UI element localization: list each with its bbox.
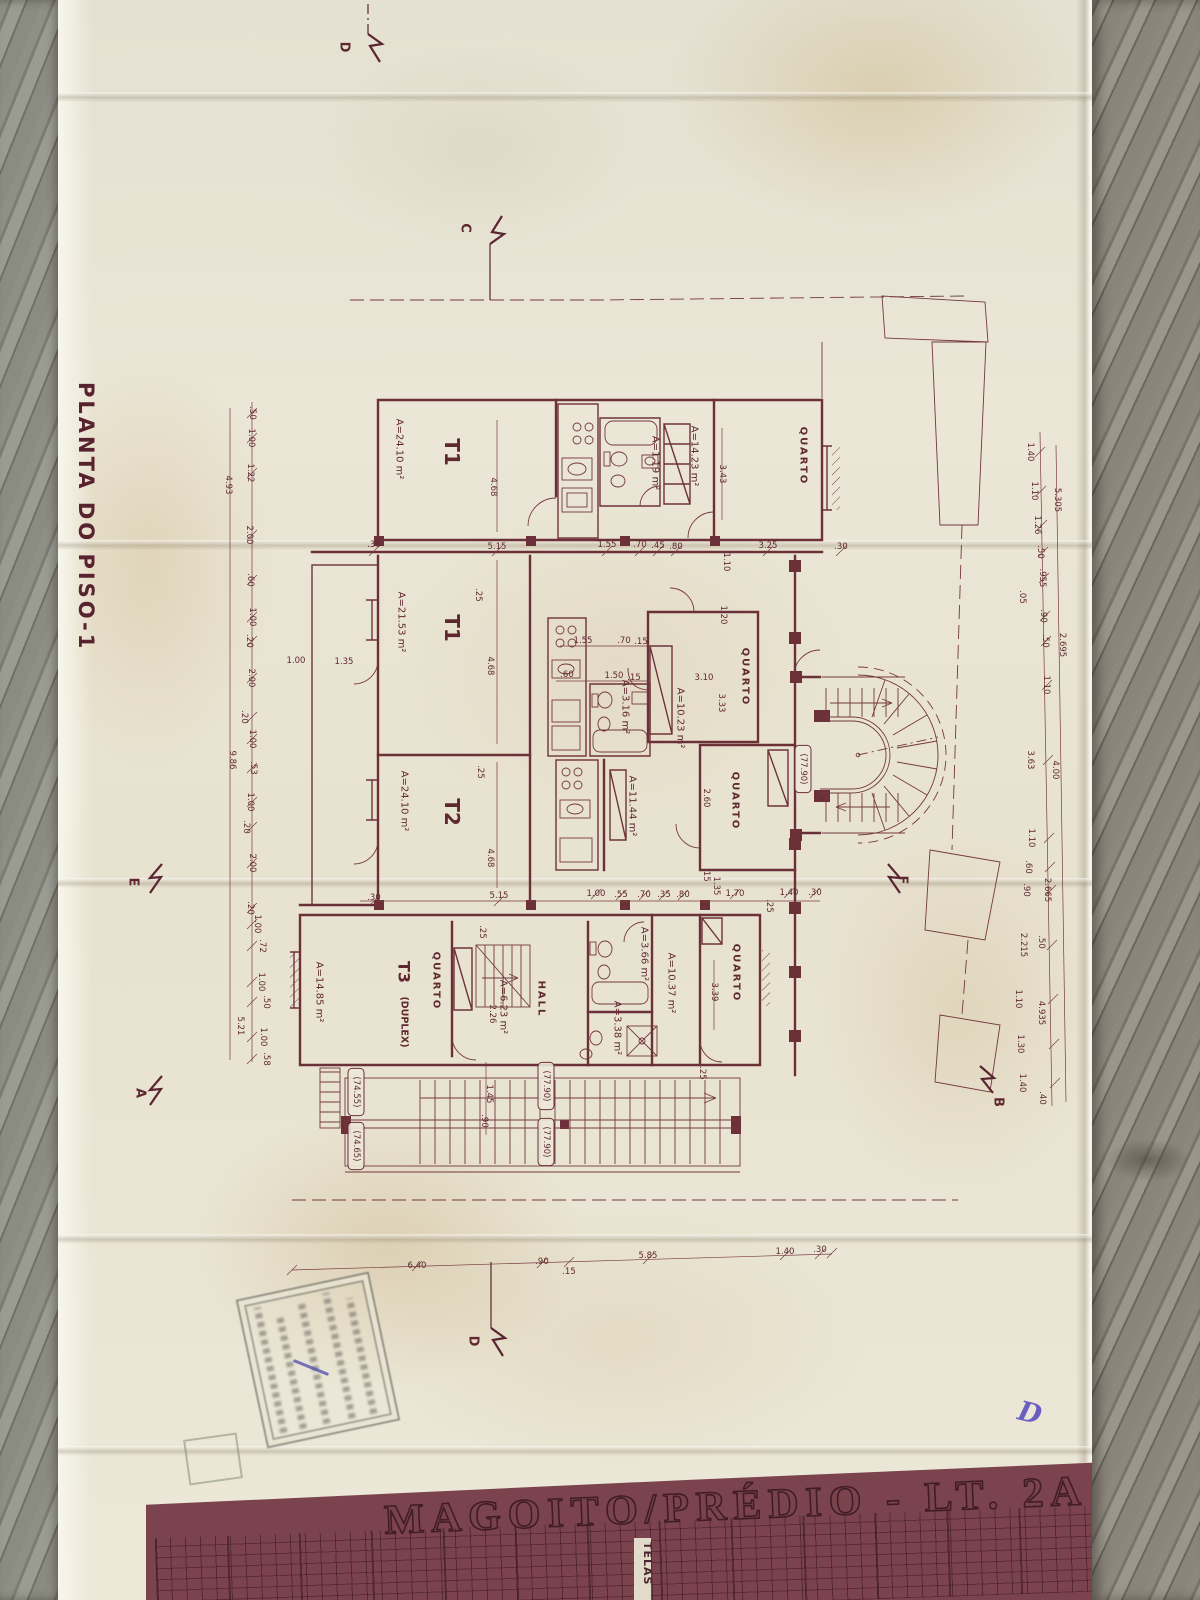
plan-label: 5.15 <box>490 891 509 901</box>
plan-label: E <box>126 878 141 887</box>
plan-label: 2.215 <box>1018 933 1028 957</box>
plan-label: .70 <box>637 890 651 900</box>
plan-label: A=3.38 m² <box>612 1001 623 1055</box>
plan-label: .15 <box>627 673 641 683</box>
plan-label: .50 <box>1040 634 1050 648</box>
terrace-tiles <box>312 565 378 905</box>
plan-label: .53 <box>248 761 258 775</box>
plan-label: 5.305 <box>1052 488 1062 512</box>
plan-label: .15 <box>701 868 711 882</box>
plan-label: .70 <box>633 540 647 550</box>
plan-label: A=3.66 m² <box>639 927 650 981</box>
plan-label: QUARTO <box>798 427 809 486</box>
plan-label: T3 <box>395 961 414 983</box>
plan-label: T1 <box>440 438 464 466</box>
plan-label: B <box>991 1097 1006 1107</box>
title-block-strip: TELAS <box>634 1538 651 1600</box>
plan-label: .25 <box>477 925 487 939</box>
plan-label: .30 <box>367 540 381 550</box>
plan-label: 1.00 <box>258 1028 268 1047</box>
plan-label: C <box>458 223 473 233</box>
plan-label: 5.15 <box>488 542 507 552</box>
plan-label: A=24.10 m² <box>394 419 405 480</box>
plan-label: .50 <box>261 995 271 1009</box>
plan-label: .50 <box>1036 935 1046 949</box>
plan-label: 1.70 <box>726 889 745 899</box>
plan-label: (77.90) <box>541 1127 551 1158</box>
section-markers <box>150 4 994 1356</box>
plan-label: 2.00 <box>247 854 257 873</box>
plan-label: .50 <box>247 406 257 420</box>
plan-label: (77.90) <box>798 754 808 785</box>
plan-label: A=10.37 m² <box>666 953 677 1014</box>
walls <box>300 400 822 1075</box>
plan-label: .15 <box>634 637 648 647</box>
plan-label: A=10.23 m² <box>675 688 686 749</box>
plan-label: 1.00 <box>287 656 306 666</box>
plan-label: 1.10 <box>721 553 731 572</box>
plan-label: A=3.16 m² <box>620 680 631 734</box>
plan-label: 4.68 <box>488 478 498 497</box>
plan-label: 3.63 <box>1025 751 1035 770</box>
plan-label: 1.40 <box>1017 1074 1027 1093</box>
plan-label: A=21.53 m² <box>396 592 407 653</box>
plan-label: .30 <box>813 1245 827 1255</box>
plan-label: 1.55 <box>598 540 617 550</box>
plan-label: .35 <box>657 890 671 900</box>
round-stair <box>820 667 946 843</box>
exterior-stairs <box>292 1068 958 1200</box>
plan-label: 4.68 <box>485 849 495 868</box>
plan-label: A=24.10 m² <box>399 771 410 832</box>
plan-label: QUARTO <box>730 772 741 831</box>
plan-label: .25 <box>697 1066 707 1080</box>
plan-label: A=6.23 m² <box>498 980 509 1034</box>
plan-label: 1.00 <box>247 730 257 749</box>
plan-label: 2.00 <box>244 526 254 545</box>
plan-label: T1 <box>440 614 464 642</box>
plan-label: A=1.19 m² <box>650 436 661 490</box>
plan-label: QUARTO <box>431 952 442 1011</box>
plan-label: HALL <box>536 981 547 1018</box>
plan-label: .955 <box>1037 569 1047 588</box>
plan-label: (74.55) <box>351 1077 361 1108</box>
plan-label: 3.10 <box>695 673 714 683</box>
plan-label: 4.935 <box>1036 1001 1046 1025</box>
plan-label: 2.00 <box>246 669 256 688</box>
plan-label: .30 <box>834 542 848 552</box>
plan-label: .60 <box>560 670 574 680</box>
plan-label: 4.68 <box>485 657 495 676</box>
plan-label: 3.33 <box>716 694 726 713</box>
plan-label: .05 <box>1017 590 1027 604</box>
plan-label: .50 <box>1035 545 1045 559</box>
plan-label: (74.65) <box>351 1131 361 1162</box>
plan-label: 1.55 <box>574 636 593 646</box>
plan-label: 9.86 <box>227 751 237 770</box>
plan-label: 1.00 <box>246 429 256 448</box>
plan-label: A <box>133 1088 148 1098</box>
plan-label: .30 <box>367 893 381 903</box>
plan-label: (77.90) <box>541 1071 551 1102</box>
plan-label: 1.00 <box>587 889 606 899</box>
plan-label: .90 <box>1038 609 1048 623</box>
title-block-strip-label: TELAS <box>641 1542 654 1559</box>
plan-label: .60 <box>1023 860 1033 874</box>
plan-label: 1.00 <box>245 793 255 812</box>
plan-label: 1.00 <box>252 915 262 934</box>
plan-label: 2.60 <box>701 789 711 808</box>
plan-label: D <box>337 42 352 53</box>
plan-label: 5.21 <box>235 1017 245 1036</box>
pencil-box-mark <box>183 1432 243 1485</box>
plan-label: 3.39 <box>709 983 719 1002</box>
plan-label: .25 <box>764 899 774 913</box>
plan-label: .15 <box>562 1267 576 1277</box>
plan-label: 1.35 <box>711 877 721 896</box>
plan-label: .60 <box>245 573 255 587</box>
plan-label: .80 <box>676 890 690 900</box>
plan-label: 2.665 <box>1042 878 1052 902</box>
plan-label: 1.20 <box>718 606 728 625</box>
plan-label: 1.30 <box>1015 1035 1025 1054</box>
plan-label: 1.10 <box>1029 482 1039 501</box>
plan-label: 4.00 <box>1050 761 1060 780</box>
plan-label: .30 <box>808 888 822 898</box>
plan-label: .55 <box>614 890 628 900</box>
plan-label: 6.40 <box>408 1261 427 1271</box>
plan-label: D <box>466 1336 481 1347</box>
plan-label: .90 <box>479 1114 489 1128</box>
plan-label: .58 <box>261 1052 271 1066</box>
plan-label: 1.35 <box>335 657 354 667</box>
plan-label: .20 <box>241 820 251 834</box>
plan-label: .70 <box>617 636 631 646</box>
plan-label: 4.93 <box>223 476 233 495</box>
plan-label: 2.695 <box>1057 633 1067 657</box>
plan-label: T2 <box>440 798 464 826</box>
floorplan-drawing: T1A=24.10 m²T1A=21.53 m²T2A=24.10 m²T3(D… <box>0 0 1200 1600</box>
plan-label: F <box>895 876 910 885</box>
photo-of-floorplan: PLANTA DO PISO-1 <box>0 0 1200 1600</box>
plan-label: QUARTO <box>731 944 742 1003</box>
plan-label: .25 <box>473 588 483 602</box>
plan-label: 1.00 <box>247 608 257 627</box>
plan-label: 1.00 <box>256 973 266 992</box>
plan-label: .40 <box>1037 1091 1047 1105</box>
plan-label: A=14.23 m² <box>689 426 700 487</box>
plan-label: .90 <box>535 1257 549 1267</box>
plan-label: 3.43 <box>717 465 727 484</box>
plan-label: 1.45 <box>484 1085 494 1104</box>
plan-label: .45 <box>651 541 665 551</box>
plan-label: .20 <box>245 901 255 915</box>
plan-label: 5.85 <box>639 1251 658 1261</box>
plan-label: 1.40 <box>780 888 799 898</box>
plan-label: .20 <box>239 710 249 724</box>
plan-label: 3.25 <box>759 541 778 551</box>
plan-label: .80 <box>669 542 683 552</box>
plan-label: .25 <box>475 765 485 779</box>
plan-label: 1.10 <box>1013 990 1023 1009</box>
plan-label: .72 <box>257 939 267 953</box>
plan-label: A=11.44 m² <box>627 776 638 837</box>
plan-label: 1.10 <box>1041 676 1051 695</box>
plan-label: 1.10 <box>1026 829 1036 848</box>
plan-label: 1.40 <box>1025 443 1035 462</box>
plan-label: .90 <box>1021 883 1031 897</box>
plan-label: 2.26 <box>487 1005 497 1024</box>
plan-label: 1.22 <box>245 464 255 483</box>
plan-label: QUARTO <box>740 648 751 707</box>
plan-label: 1.26 <box>1032 516 1042 535</box>
plan-label: 1.50 <box>605 671 624 681</box>
plan-label: 1.40 <box>776 1247 795 1257</box>
plan-label: (DUPLEX) <box>399 996 410 1047</box>
plan-label: .20 <box>244 634 254 648</box>
plan-label: A=14.85 m² <box>314 962 325 1023</box>
